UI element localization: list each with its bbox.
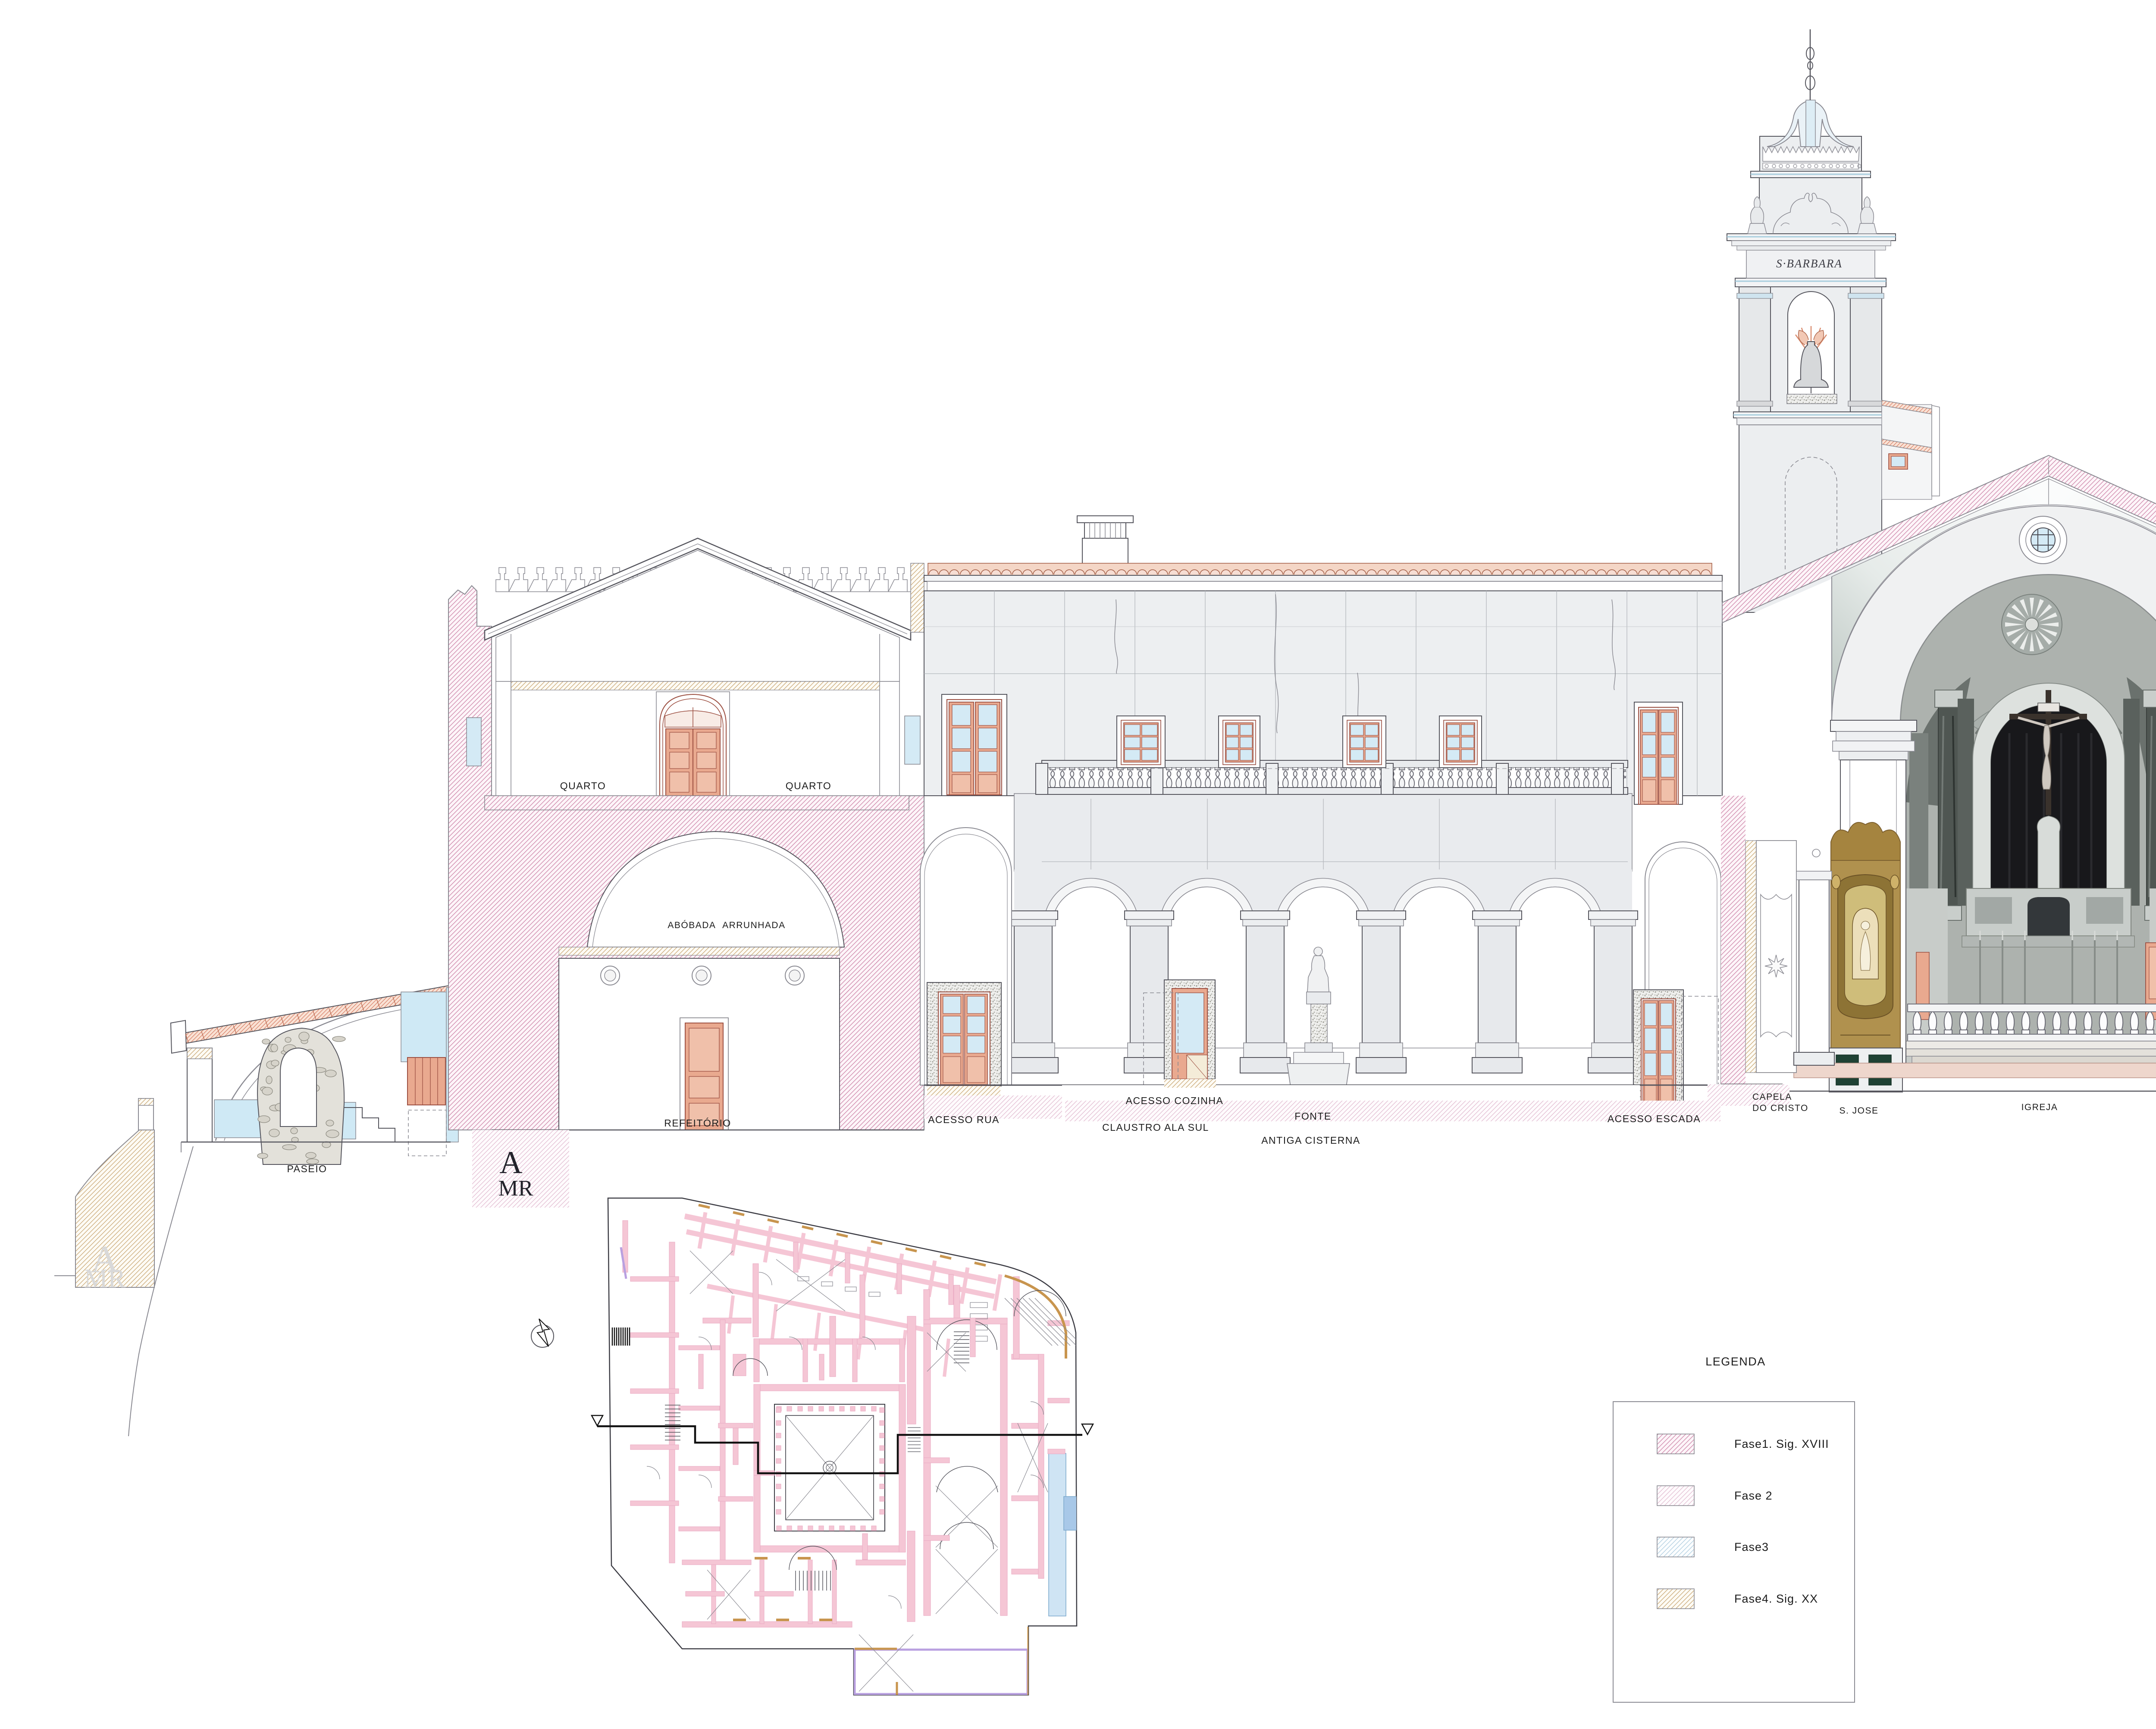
svg-text:CLAUSTRO ALA SUL: CLAUSTRO ALA SUL — [1102, 1122, 1209, 1133]
svg-text:REFEITÓRIO: REFEITÓRIO — [664, 1117, 731, 1129]
svg-text:Fase 2: Fase 2 — [1734, 1489, 1773, 1502]
svg-text:IGREJA: IGREJA — [2021, 1102, 2058, 1112]
svg-text:ACESSO COZINHA: ACESSO COZINHA — [1126, 1095, 1224, 1106]
svg-text:A: A — [499, 1145, 522, 1180]
svg-text:ANTIGA CISTERNA: ANTIGA CISTERNA — [1261, 1135, 1360, 1146]
svg-text:Fase4. Sig. XX: Fase4. Sig. XX — [1734, 1592, 1818, 1605]
svg-text:MR: MR — [498, 1176, 533, 1201]
svg-text:QUARTO: QUARTO — [786, 780, 832, 791]
svg-text:PASEIO: PASEIO — [287, 1163, 327, 1174]
svg-text:S·BARBARA: S·BARBARA — [1776, 257, 1843, 270]
svg-text:ACESSO RUA: ACESSO RUA — [928, 1114, 1000, 1125]
svg-text:Fase3: Fase3 — [1734, 1541, 1769, 1553]
svg-text:LEGENDA: LEGENDA — [1705, 1355, 1766, 1368]
svg-text:Fase1. Sig. XVIII: Fase1. Sig. XVIII — [1734, 1437, 1829, 1450]
svg-text:ABÓBADA ARRUNHADA: ABÓBADA ARRUNHADA — [667, 920, 785, 930]
svg-text:DO CRISTO: DO CRISTO — [1752, 1103, 1808, 1113]
svg-text:MR: MR — [84, 1264, 126, 1293]
svg-text:ACESSO ESCADA: ACESSO ESCADA — [1608, 1113, 1701, 1124]
svg-text:QUARTO: QUARTO — [560, 780, 606, 791]
svg-text:FONTE: FONTE — [1294, 1111, 1331, 1122]
svg-text:CAPELA: CAPELA — [1752, 1092, 1792, 1102]
svg-text:S. JOSE: S. JOSE — [1839, 1106, 1878, 1116]
